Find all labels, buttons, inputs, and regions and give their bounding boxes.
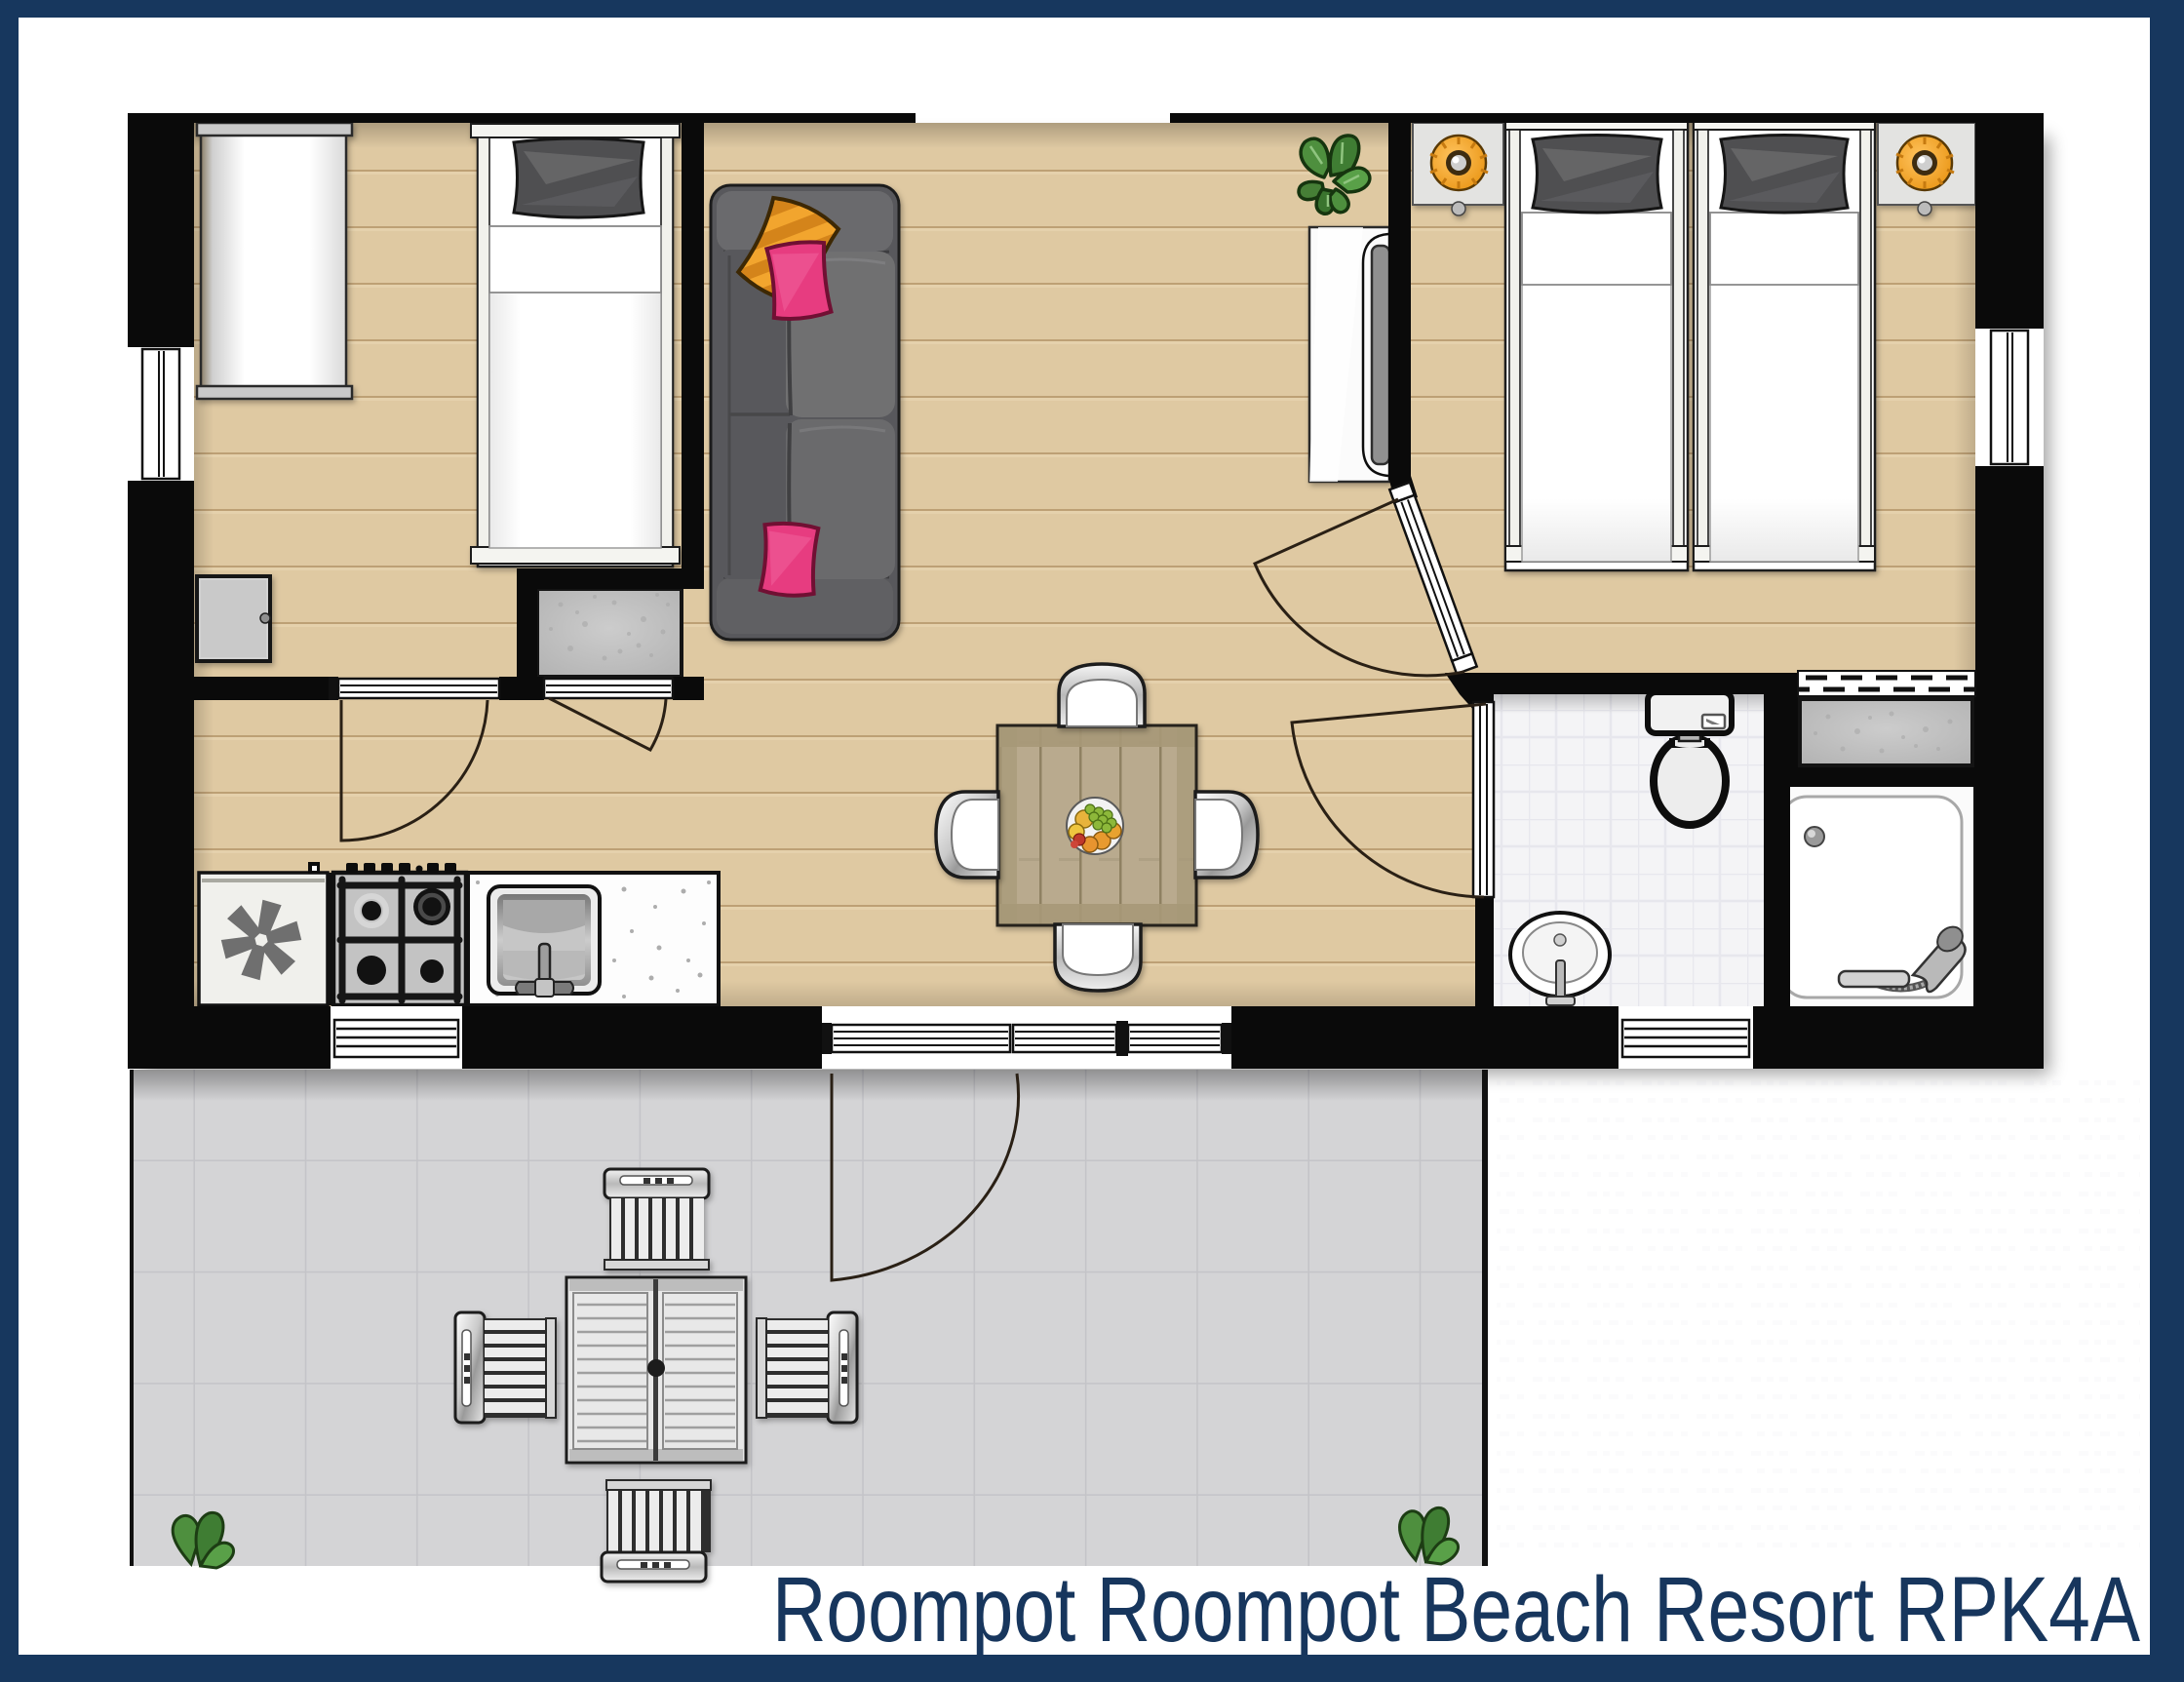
svg-text:Roompot Roompot Beach Resort R: Roompot Roompot Beach Resort RPK4A <box>772 1558 2141 1662</box>
